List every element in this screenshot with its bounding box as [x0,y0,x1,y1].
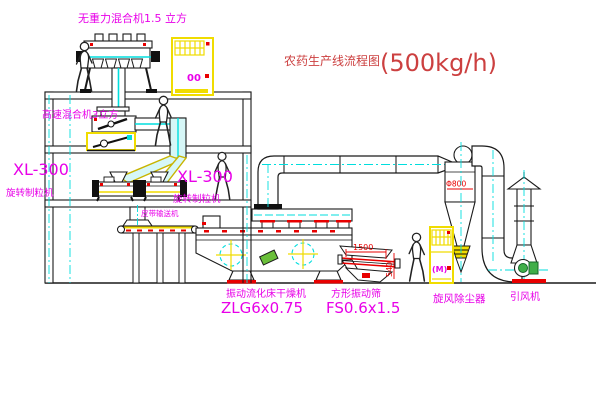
title-capacity: (500kg/h) [380,49,497,77]
cabinet-top-label: 00 [187,73,201,84]
screen-length-text: 1500 [353,243,373,252]
label-granulator-right-name: 旋转制粒机 [173,193,221,205]
label-granulator-right-model: XL-300 [177,167,233,186]
floor-beam-top [45,92,251,99]
cad-drawing-pesticide-line: 00 [0,0,600,403]
mixer-lid [84,41,152,48]
dryer-top-rail [196,228,352,235]
drawing-surface: 00 [0,0,600,403]
label-screen-model: FS0.6x1.5 [326,299,400,317]
screen-height-text: 540 [385,262,394,277]
indicator-light [206,42,210,46]
label-fan: 引风机 [510,290,540,303]
label-dryer-model: ZLG6x0.75 [221,299,303,317]
cyclone-outlet-flange [454,146,472,164]
fan-base [512,279,546,283]
floor-beam-middle [45,146,251,153]
mixer-bearing-right [151,51,160,62]
label-cyclone: 旋风除尘器 [433,292,486,305]
label-high-speed-mixer: 高速混合机3立方 [42,108,118,121]
label-granulator-left-model: XL-300 [13,160,69,179]
title-text: 农药生产线流程图 [284,53,380,68]
control-cabinet-top: 00 [172,38,213,95]
cabinet-right-label: (M) [432,265,447,274]
label-gravity-mixer: 无重力混合机1.5 立方 [78,11,187,25]
cyclone-dimension: Φ800 [446,180,466,189]
label-belt-conveyor: 皮带输送机 [141,208,179,218]
label-granulator-left-name: 旋转制粒机 [6,187,54,199]
control-cabinet-right: (M) [430,227,453,283]
